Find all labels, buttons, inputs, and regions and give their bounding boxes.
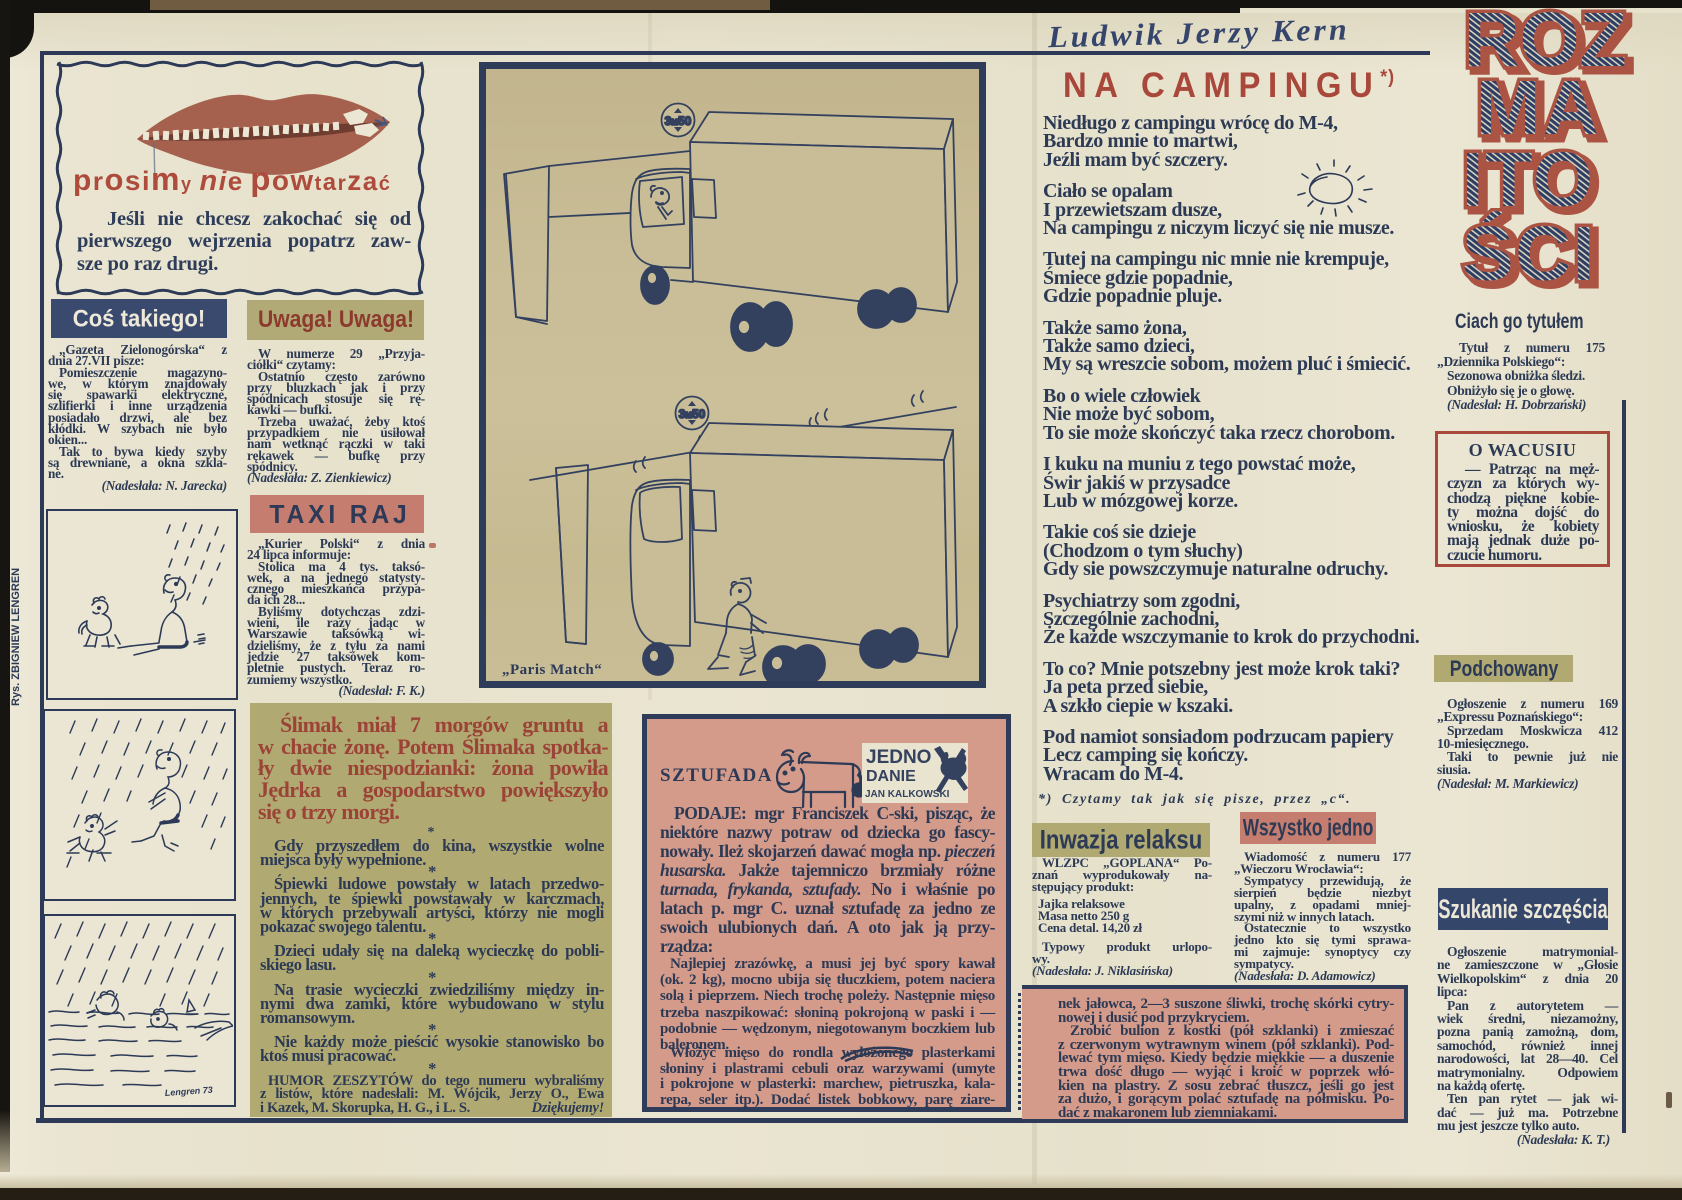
svg-text:ŚCI: ŚCI: [1462, 211, 1596, 297]
svg-text:JEDNO: JEDNO: [866, 747, 931, 768]
svg-text:3M50: 3M50: [679, 407, 706, 421]
svg-text:3M50: 3M50: [665, 114, 692, 128]
svg-text:Lengren 73: Lengren 73: [164, 1085, 213, 1098]
svg-text:DANIE: DANIE: [866, 768, 916, 785]
